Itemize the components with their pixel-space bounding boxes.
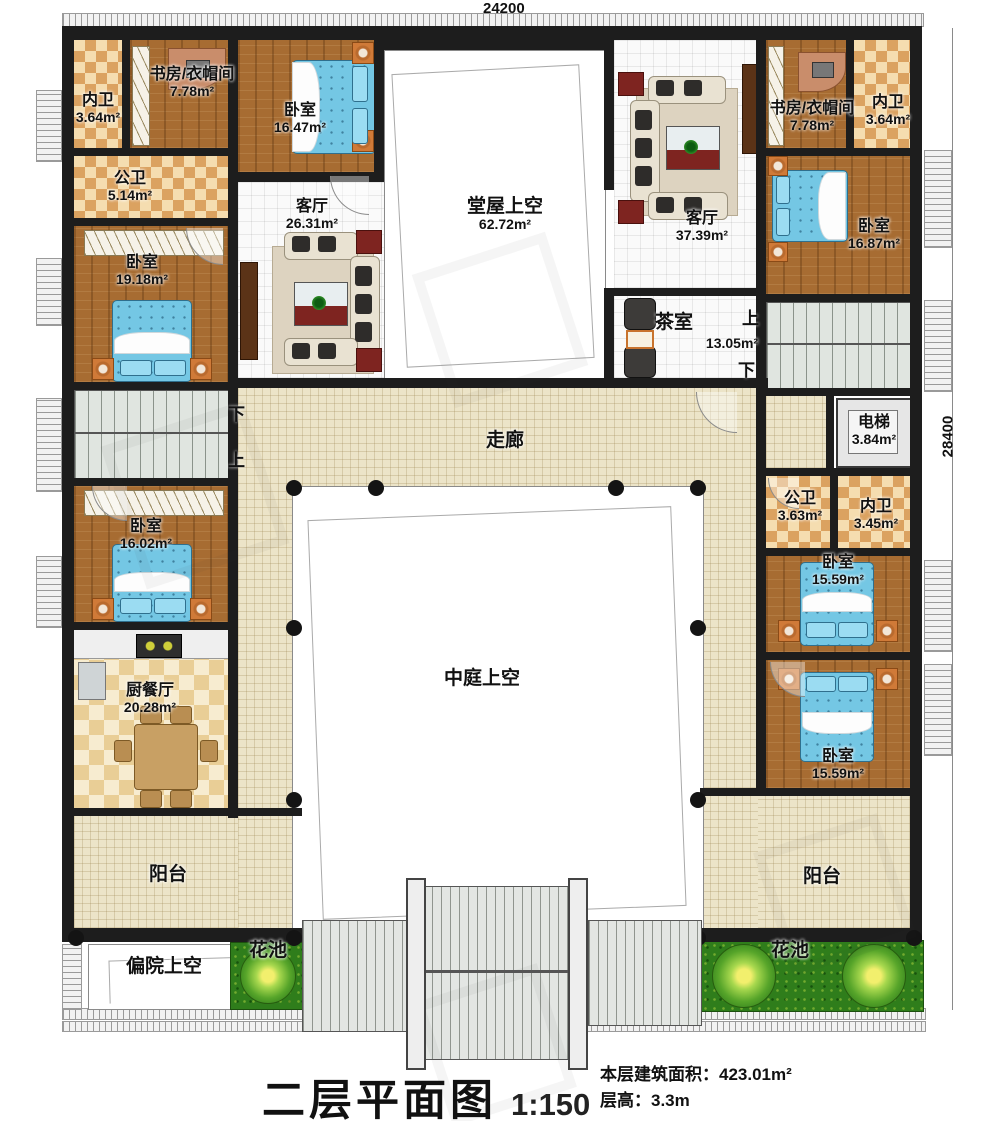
column — [690, 620, 706, 636]
column — [368, 480, 384, 496]
right-staircase — [766, 302, 912, 390]
room-label-side-yard: 偏院上空 — [126, 956, 202, 977]
sofa-cushion — [635, 166, 652, 186]
grand-staircase-east — [588, 920, 702, 1026]
side-table — [356, 348, 382, 372]
nightstand — [352, 42, 374, 64]
pillow — [838, 676, 868, 692]
tv-cabinet — [240, 262, 258, 360]
tea-table — [626, 330, 654, 349]
sofa-cushion — [355, 322, 372, 342]
sofa-cushion — [684, 80, 702, 96]
column — [68, 930, 84, 946]
tea-chair — [624, 298, 656, 330]
room-label-e-innerbath: 内卫3.45m² — [854, 498, 898, 532]
stair-rail-right — [568, 878, 588, 1070]
wall — [700, 788, 912, 796]
side-table — [356, 230, 382, 254]
nightstand — [778, 620, 800, 642]
monitor-icon — [812, 62, 834, 78]
dining-table — [134, 724, 198, 790]
sofa-cushion — [355, 294, 372, 314]
wall — [62, 382, 238, 390]
sofa-cushion — [635, 138, 652, 158]
wall — [604, 40, 614, 190]
dining-chair — [114, 740, 132, 762]
side-table — [618, 200, 644, 224]
wall — [756, 652, 912, 660]
room-label-balcony-left: 阳台 — [149, 864, 187, 885]
plan-notes: 本层建筑面积：423.01m² 层高：3.3m — [600, 1062, 792, 1115]
wall — [830, 476, 838, 556]
stair-down-label: 下 — [738, 356, 755, 381]
terrace-railing — [62, 944, 82, 1010]
nightstand — [92, 358, 114, 380]
room-label-tea-room: 茶室 — [655, 312, 693, 333]
nightstand — [190, 358, 212, 380]
room-label-nw-study: 书房/衣帽间7.78m² — [150, 66, 234, 100]
elevator-lobby-floor — [766, 396, 830, 468]
pillow — [776, 208, 790, 236]
plan-height-note: 层高：3.3m — [600, 1088, 792, 1114]
title-block: 二层平面图1:150 — [262, 1066, 592, 1121]
window-platform — [924, 664, 952, 756]
plan-scale: 1:150 — [511, 1087, 590, 1121]
column — [690, 480, 706, 496]
room-label-hall-void: 堂屋上空62.72m² — [467, 196, 543, 233]
nightstand — [92, 598, 114, 620]
wall — [62, 808, 302, 816]
room-label-tea-area: 13.05m² — [706, 336, 758, 352]
grand-staircase-west — [302, 920, 408, 1032]
stair-up-label: 上 — [742, 304, 759, 329]
wall — [756, 392, 766, 792]
pillow — [352, 108, 368, 144]
bed-sheet — [818, 172, 846, 240]
stair-rail-left — [406, 878, 426, 1070]
pillow — [838, 622, 868, 638]
wall — [756, 388, 912, 396]
room-label-w-publicbath: 公卫5.14m² — [108, 170, 152, 204]
window-platform — [36, 556, 62, 628]
sofa-cushion — [355, 266, 372, 286]
pillow — [154, 598, 186, 614]
room-label-kitchen: 厨餐厅20.28m² — [124, 682, 176, 716]
plan-area-note: 本层建筑面积：423.01m² — [600, 1062, 792, 1088]
room-label-flower-left: 花池 — [249, 940, 287, 961]
wardrobe — [132, 46, 150, 146]
tea-chair — [624, 346, 656, 378]
room-label-sw-bedroom: 卧室16.02m² — [120, 518, 172, 552]
room-label-elevator: 电梯3.84m² — [852, 414, 896, 448]
nightstand — [876, 668, 898, 690]
column — [286, 930, 302, 946]
room-label-w-living: 客厅26.31m² — [286, 198, 338, 232]
side-table — [618, 72, 644, 96]
wall — [604, 288, 766, 296]
plant-icon — [312, 296, 326, 310]
column — [690, 792, 706, 808]
column — [286, 792, 302, 808]
sink — [78, 662, 106, 700]
dimension-right-line — [952, 28, 953, 1010]
cooktop — [136, 634, 182, 658]
room-label-w-bedroom: 卧室19.18m² — [116, 254, 168, 288]
wall — [756, 468, 912, 476]
right-staircase-rail — [766, 343, 910, 345]
wall — [910, 26, 922, 942]
pillow — [120, 598, 152, 614]
sofa-cushion — [318, 236, 336, 252]
sofa-cushion — [318, 343, 336, 359]
wall — [62, 218, 238, 226]
pillow — [776, 176, 790, 204]
atrium-void — [292, 486, 704, 934]
window-platform — [924, 150, 952, 248]
wall — [122, 40, 130, 152]
bed-sheet — [802, 592, 872, 612]
wall — [374, 26, 384, 182]
pillow — [154, 360, 186, 376]
nightstand — [876, 620, 898, 642]
pillow — [806, 622, 836, 638]
window-platform — [924, 560, 952, 652]
wall — [766, 294, 910, 302]
window-platform — [36, 258, 62, 326]
room-label-se-bedroom-lower: 卧室15.59m² — [812, 748, 864, 782]
sofa-cushion — [635, 110, 652, 130]
dimension-top: 24200 — [483, 0, 525, 17]
room-label-atrium: 中庭上空 — [444, 668, 520, 689]
room-label-corridor: 走廊 — [486, 430, 524, 451]
dining-chair — [140, 790, 162, 808]
room-label-ne-study: 书房/衣帽间7.78m² — [770, 100, 854, 134]
bed-sheet — [802, 712, 872, 734]
wall — [62, 148, 238, 156]
wall — [826, 392, 834, 472]
stair-down-label: 下 — [228, 400, 245, 425]
nightstand — [768, 156, 788, 176]
room-label-se-bedroom-upper: 卧室15.59m² — [812, 554, 864, 588]
room-label-nw-bedroom: 卧室16.47m² — [274, 102, 326, 136]
window-platform — [36, 398, 62, 492]
room-label-ne-bedroom: 卧室16.87m² — [848, 218, 900, 252]
nightstand — [190, 598, 212, 620]
floor-plan: 24200 28400 — [0, 0, 1000, 1121]
wall — [766, 148, 910, 156]
bed-sheet — [114, 332, 190, 354]
column — [286, 620, 302, 636]
stair-up-label: 上 — [228, 446, 245, 471]
room-label-e-publicbath: 公卫3.63m² — [778, 490, 822, 524]
sofa-cushion — [292, 343, 310, 359]
tree-icon — [712, 944, 776, 1008]
pillow — [120, 360, 152, 376]
sofa-cushion — [656, 197, 674, 213]
room-label-nw-innerbath: 内卫3.64m² — [76, 92, 120, 126]
sofa-cushion — [656, 80, 674, 96]
plant-icon — [684, 140, 698, 154]
room-label-balcony-right: 阳台 — [803, 866, 841, 887]
window-platform — [36, 90, 62, 162]
wall — [604, 288, 614, 388]
sofa-cushion — [292, 236, 310, 252]
plan-title: 二层平面图 — [262, 1066, 497, 1121]
room-label-flower-right: 花池 — [771, 940, 809, 961]
pillow — [352, 66, 368, 102]
column — [608, 480, 624, 496]
dining-chair — [200, 740, 218, 762]
column — [286, 480, 302, 496]
wall — [62, 26, 922, 40]
room-label-e-living: 客厅37.39m² — [676, 210, 728, 244]
window-platform — [924, 300, 952, 392]
wall — [62, 622, 238, 630]
nightstand — [768, 242, 788, 262]
room-label-ne-innerbath: 内卫3.64m² — [866, 94, 910, 128]
grand-staircase-landing — [422, 970, 568, 973]
wall — [384, 40, 614, 50]
dimension-right: 28400 — [940, 407, 957, 467]
pillow — [806, 676, 836, 692]
dining-chair — [170, 790, 192, 808]
